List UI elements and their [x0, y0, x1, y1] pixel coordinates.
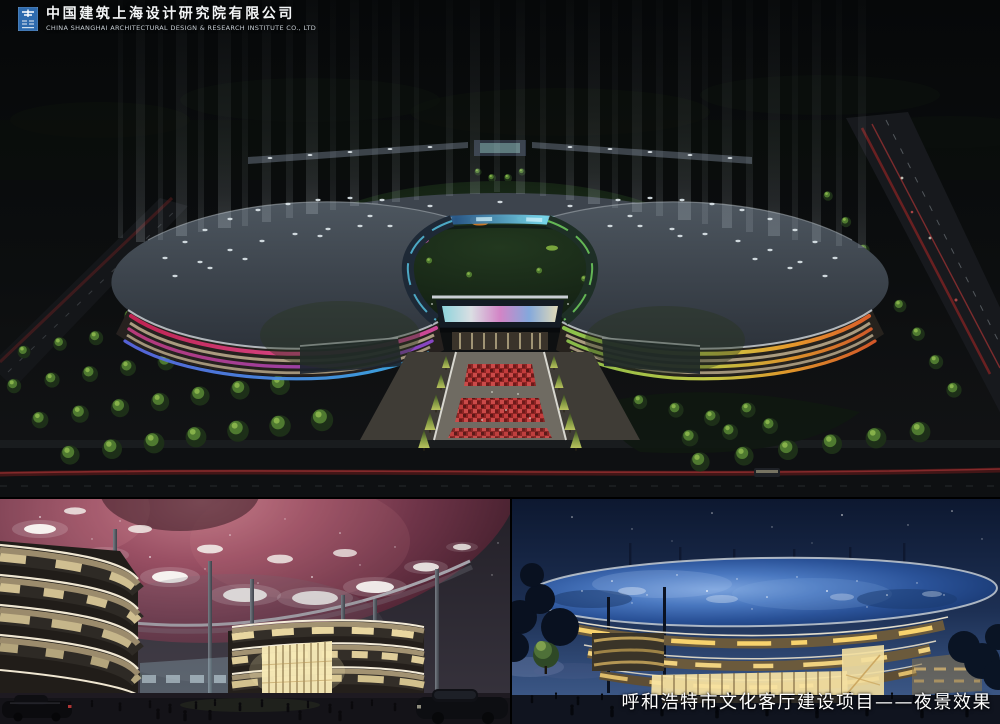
aerial-scene-image: [0, 0, 1000, 497]
glass-bridge: [432, 297, 568, 350]
company-logo-icon: [18, 7, 38, 31]
company-name-en: CHINA SHANGHAI ARCHITECTURAL DESIGN & RE…: [46, 24, 316, 32]
red-pavement-pattern: [464, 364, 536, 386]
mid-glass-strip: [140, 657, 228, 697]
left-annex-building: [592, 633, 664, 671]
right-curved-building: [228, 619, 424, 701]
company-name-block: 中国建筑上海设计研究院有限公司 CHINA SHANGHAI ARCHITECT…: [46, 7, 316, 32]
evening-elevation-panel: 呼和浩特市文化客厅建设项目——夜景效果: [512, 499, 1000, 724]
company-brand: 中国建筑上海设计研究院有限公司 CHINA SHANGHAI ARCHITECT…: [18, 7, 316, 32]
aerial-night-view-panel: 中国建筑上海设计研究院有限公司 CHINA SHANGHAI ARCHITECT…: [0, 0, 1000, 497]
company-name-cn: 中国建筑上海设计研究院有限公司: [46, 7, 316, 22]
canopy-closeup-panel: [0, 499, 510, 724]
project-caption: 呼和浩特市文化客厅建设项目——夜景效果: [622, 688, 993, 714]
left-curved-building: [0, 541, 138, 697]
poster-root: 中国建筑上海设计研究院有限公司 CHINA SHANGHAI ARCHITECT…: [0, 0, 1000, 724]
canopy-scene-image: [0, 499, 510, 724]
